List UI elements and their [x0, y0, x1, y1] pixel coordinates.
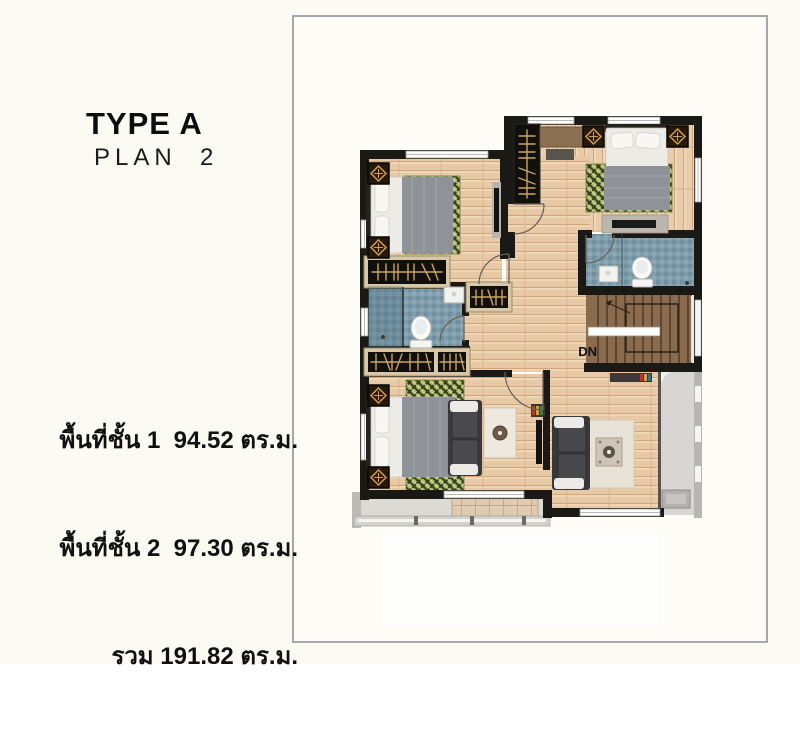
sofa-pillow [554, 478, 584, 489]
page: TYPE A PLAN 2 พื้นที่ชั้น 1 94.52 ตร.ม. … [0, 0, 800, 664]
stairs [586, 294, 697, 364]
wardrobe-bedroom-top-right [514, 124, 540, 204]
pillow [375, 403, 389, 433]
dn-label: DN [578, 344, 597, 359]
bench [546, 149, 574, 160]
window [608, 117, 660, 124]
cabinet [540, 127, 584, 147]
window [444, 491, 524, 498]
pillow [635, 132, 660, 149]
pillow [375, 437, 389, 467]
closet-hall [466, 282, 512, 312]
window [695, 158, 701, 202]
sofa-pillow [450, 401, 478, 412]
shower-area [368, 286, 402, 347]
light-icon [368, 163, 389, 184]
floor-drain [381, 335, 385, 339]
window [695, 300, 701, 356]
tv-icon [494, 188, 499, 232]
pillow [375, 182, 389, 212]
sofa-pillow [450, 464, 478, 475]
wardrobe-bedroom-top-left [364, 256, 450, 288]
light-icon [583, 126, 604, 147]
light-icon [368, 385, 389, 406]
tv-icon [536, 420, 542, 464]
floor-plan: DN [0, 0, 800, 664]
light-icon [368, 467, 389, 488]
window [406, 151, 488, 158]
stair-handrail [588, 327, 660, 336]
window [361, 308, 368, 336]
sheet-highlight [381, 532, 659, 626]
window [580, 509, 660, 516]
bed-blanket [402, 177, 453, 253]
sofa-pillow [554, 417, 584, 428]
tv-icon [612, 220, 656, 228]
light-icon [667, 126, 688, 147]
light-icon [368, 237, 389, 258]
pillow [610, 132, 633, 149]
window [528, 117, 574, 124]
terrace-right [658, 370, 702, 518]
floor-drain [685, 281, 689, 285]
wardrobe-below-bathroom [364, 348, 470, 376]
